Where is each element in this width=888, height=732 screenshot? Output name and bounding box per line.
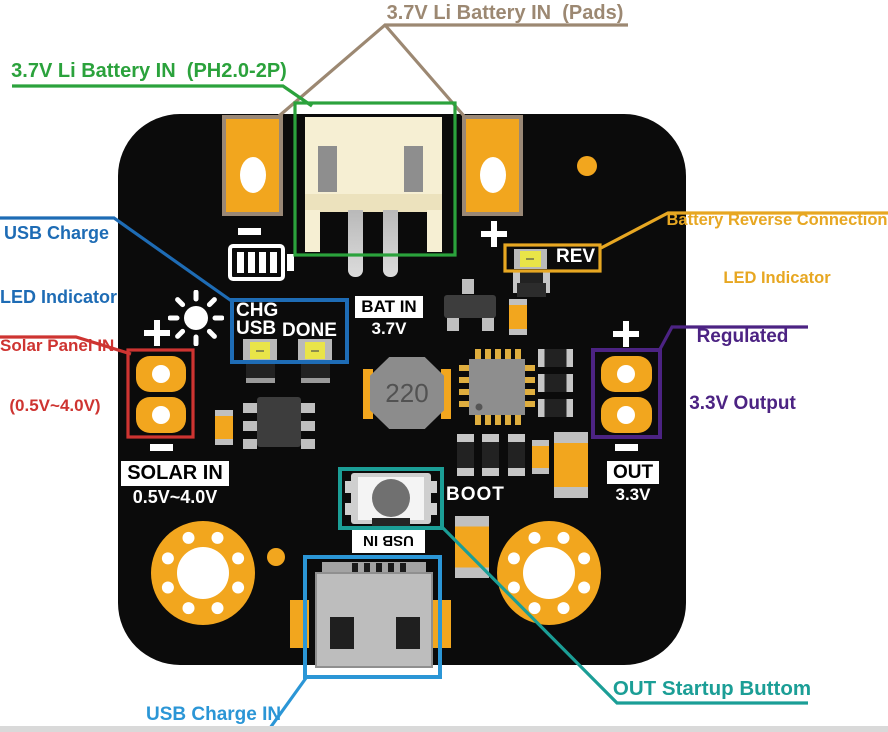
boot-button-bar xyxy=(372,518,410,526)
component-under-chg-led xyxy=(246,363,275,383)
soic-leg xyxy=(301,403,315,413)
usb-pin xyxy=(364,563,370,572)
sun-icon xyxy=(168,290,224,346)
capacitor xyxy=(457,434,474,476)
soic-leg xyxy=(243,421,257,431)
solar-in-block: SOLAR IN xyxy=(121,461,229,486)
plus-symbol xyxy=(613,321,639,347)
battery-icon xyxy=(228,244,285,281)
capacitor xyxy=(482,434,499,476)
label-line: Battery Reverse Connection xyxy=(666,211,888,230)
annotated-pcb-diagram: REV CHG USB DONE BAT IN 3.7V SOLAR IN 0.… xyxy=(0,0,888,732)
led-dash xyxy=(526,258,534,260)
label-line: Solar Panel IN xyxy=(0,336,110,356)
capacitor xyxy=(532,440,549,474)
capacitor xyxy=(215,410,233,445)
capacitor xyxy=(509,299,527,335)
label-line: Regulated xyxy=(670,326,815,348)
fiducial-dot-bottom xyxy=(267,548,285,566)
pad-hole xyxy=(240,157,266,193)
transistor xyxy=(444,295,496,318)
connector-prong-left xyxy=(305,210,320,252)
led-dash xyxy=(256,350,264,352)
battery-pad-left xyxy=(222,115,283,216)
label-battery-pads: 3.7V Li Battery IN (Pads) xyxy=(380,2,630,26)
connector-pin-right xyxy=(404,146,423,192)
usb-text: USB xyxy=(236,318,276,340)
label-usb-charge-in: USB Charge IN xyxy=(146,704,272,726)
sot-leg xyxy=(462,279,474,294)
solar-voltage-text: 0.5V~4.0V xyxy=(116,487,234,508)
callout-line-battery-connector xyxy=(12,86,312,106)
mounting-hole-left xyxy=(151,521,255,625)
minus-symbol xyxy=(238,228,261,235)
usb-pin xyxy=(376,563,382,572)
out-block: OUT xyxy=(607,461,659,484)
pad-hole xyxy=(152,365,170,383)
inductor: 220 xyxy=(370,357,444,429)
minus-symbol xyxy=(615,444,638,451)
label-line: 3.3V Output xyxy=(670,393,815,415)
out-voltage-text: 3.3V xyxy=(607,485,659,505)
label-battery-connector: 3.7V Li Battery IN (PH2.0-2P) xyxy=(8,60,290,84)
soic-leg xyxy=(301,421,315,431)
boot-button-actuator xyxy=(372,479,410,517)
usb-in-block: USB IN xyxy=(352,529,425,553)
battery-pad-right xyxy=(462,115,523,216)
bat-voltage-text: 3.7V xyxy=(355,319,423,339)
plus-symbol xyxy=(144,320,170,346)
callout-line-battery-pads xyxy=(279,25,628,116)
connector-leg-left xyxy=(348,210,363,277)
minus-symbol xyxy=(150,444,173,451)
label-out-startup-button: OUT Startup Buttom xyxy=(612,677,812,701)
resistor xyxy=(538,374,573,392)
output-capacitor xyxy=(554,432,588,498)
capacitor xyxy=(508,434,525,476)
resistor xyxy=(538,399,573,417)
output-capacitor xyxy=(455,516,489,578)
sot-leg xyxy=(447,316,459,331)
charger-ic xyxy=(257,397,301,447)
mounting-hole-right xyxy=(497,521,601,625)
connector-prong-right xyxy=(427,210,442,252)
usb-pin xyxy=(352,563,358,572)
label-line: USB Charge xyxy=(0,223,113,244)
usb-side-pad-right xyxy=(432,600,451,648)
plus-symbol xyxy=(481,221,507,247)
connector-leg-right xyxy=(383,210,398,277)
usb-pin xyxy=(400,563,406,572)
battery-icon-nub xyxy=(287,254,294,271)
label-solar-panel-in: Solar Panel IN (0.5V~4.0V) xyxy=(0,296,110,456)
soic-leg xyxy=(243,439,257,449)
component-under-rev-body xyxy=(517,283,546,297)
usb-contact xyxy=(396,617,420,649)
bottom-edge-bar xyxy=(0,726,888,732)
pad-hole xyxy=(152,406,170,424)
component-under-done-led xyxy=(301,363,330,383)
rev-text: REV xyxy=(556,246,595,268)
bat-in-block: BAT IN xyxy=(355,296,423,318)
resistor xyxy=(538,349,573,367)
main-ic xyxy=(459,349,535,425)
label-line: (0.5V~4.0V) xyxy=(0,396,110,416)
sot-leg xyxy=(482,316,494,331)
inductor-value: 220 xyxy=(385,378,428,409)
soic-leg xyxy=(243,403,257,413)
pad-hole xyxy=(617,406,635,424)
pad-hole xyxy=(480,157,506,193)
connector-pin-left xyxy=(318,146,337,192)
battery-connector-ledge xyxy=(305,194,442,212)
usb-side-pad-left xyxy=(290,600,309,648)
soic-leg xyxy=(301,439,315,449)
boot-text: BOOT xyxy=(446,484,505,506)
pad-hole xyxy=(617,365,635,383)
fiducial-dot-top-right xyxy=(577,156,597,176)
label-regulated-output: Regulated 3.3V Output xyxy=(670,281,815,460)
usb-contact xyxy=(330,617,354,649)
usb-pin xyxy=(388,563,394,572)
led-dash xyxy=(311,350,319,352)
